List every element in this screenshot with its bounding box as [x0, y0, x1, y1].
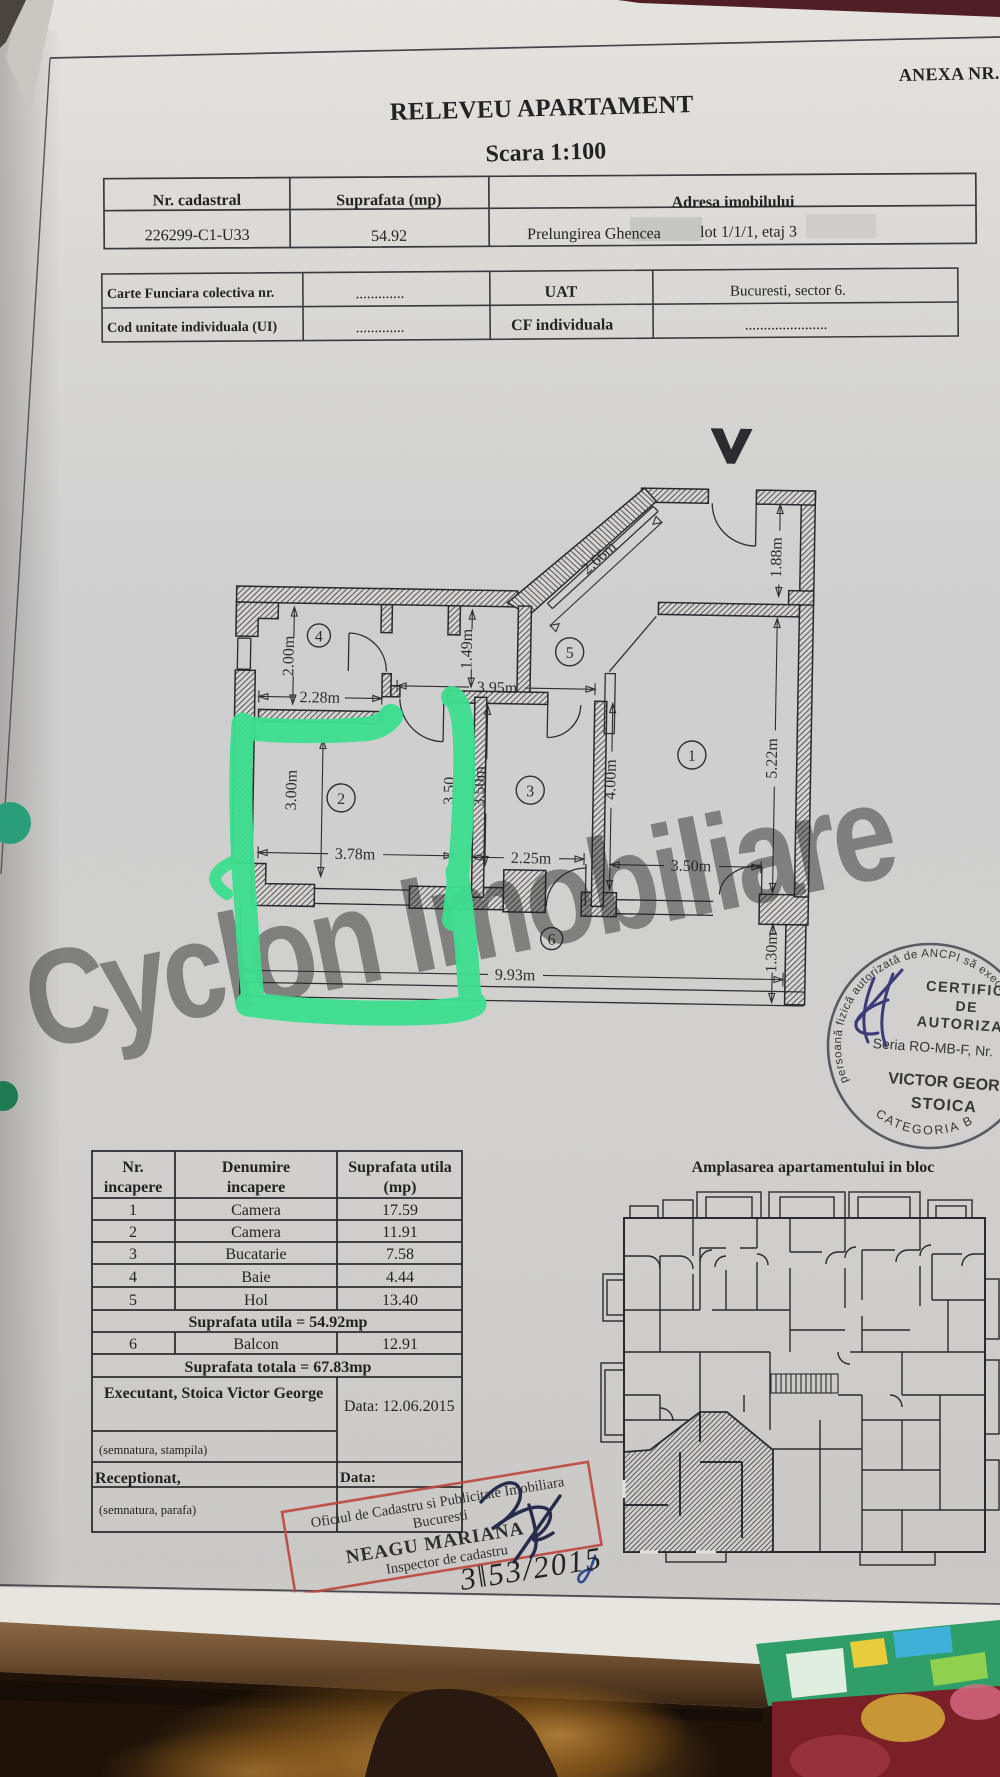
svg-text:4.00m: 4.00m [602, 759, 620, 800]
svg-text:Scara 1:100: Scara 1:100 [485, 138, 606, 167]
svg-text:Balcon: Balcon [233, 1336, 278, 1353]
svg-text:CF individuala: CF individuala [511, 316, 613, 334]
svg-text:4: 4 [315, 628, 323, 645]
svg-text:6: 6 [129, 1336, 137, 1353]
svg-text:Hol: Hol [244, 1292, 269, 1309]
svg-text:3.00m: 3.00m [283, 769, 301, 810]
svg-text:Receptionat,: Receptionat, [95, 1470, 181, 1487]
svg-text:1: 1 [688, 748, 696, 765]
svg-text:5: 5 [565, 645, 573, 662]
svg-text:7.58: 7.58 [386, 1246, 414, 1263]
svg-text:incapere: incapere [227, 1179, 285, 1196]
svg-text:ANEXA NR. 1: ANEXA NR. 1 [899, 62, 1000, 85]
svg-text:(semnatura, stampila): (semnatura, stampila) [99, 1443, 207, 1457]
svg-text:Baie: Baie [241, 1269, 270, 1286]
svg-text:1.30m: 1.30m [763, 932, 781, 973]
svg-text:Suprafata utila: Suprafata utila [348, 1159, 452, 1176]
svg-text:Cod unitate individuala (UI): Cod unitate individuala (UI) [107, 320, 277, 336]
svg-text:Suprafata totala = 67.83mp: Suprafata totala = 67.83mp [185, 1359, 372, 1376]
svg-text:Denumire: Denumire [222, 1159, 290, 1176]
svg-text:lot 1/1/1, etaj 3: lot 1/1/1, etaj 3 [700, 223, 797, 241]
svg-text:UAT: UAT [545, 284, 578, 301]
svg-text:2.28m: 2.28m [299, 689, 340, 707]
svg-text:3: 3 [526, 783, 534, 800]
svg-text:Suprafata (mp): Suprafata (mp) [336, 192, 441, 210]
svg-text:1.88m: 1.88m [768, 537, 786, 578]
svg-text:17.59: 17.59 [382, 1202, 418, 1219]
svg-text:Amplasarea apartamentului in b: Amplasarea apartamentului in bloc [692, 1159, 935, 1176]
svg-text:1: 1 [129, 1202, 137, 1219]
svg-text:4.44: 4.44 [386, 1269, 414, 1286]
svg-text:.............: ............. [355, 286, 404, 302]
svg-text:11.91: 11.91 [382, 1224, 417, 1241]
svg-text:5: 5 [129, 1292, 137, 1309]
svg-text:Bucuresti, sector 6.: Bucuresti, sector 6. [730, 283, 846, 300]
svg-text:54.92: 54.92 [371, 228, 407, 245]
svg-text:Carte Funciara colectiva nr.: Carte Funciara colectiva nr. [107, 286, 275, 302]
svg-text:Nr. cadastral: Nr. cadastral [153, 192, 242, 210]
svg-text:(semnatura, parafa): (semnatura, parafa) [99, 1503, 196, 1517]
svg-text:4: 4 [129, 1269, 137, 1286]
svg-text:Adresa imobilului: Adresa imobilului [671, 193, 794, 211]
svg-text:incapere: incapere [104, 1179, 162, 1196]
svg-text:3: 3 [129, 1246, 137, 1263]
svg-text:Camera: Camera [231, 1202, 281, 1219]
svg-text:.............: ............. [356, 320, 405, 336]
svg-text:Camera: Camera [231, 1224, 281, 1241]
svg-text:Suprafata utila = 54.92mp: Suprafata utila = 54.92mp [189, 1314, 368, 1331]
svg-text:2: 2 [337, 791, 345, 808]
svg-text:2.00m: 2.00m [280, 635, 298, 676]
svg-text:226299-C1-U33: 226299-C1-U33 [145, 227, 250, 245]
svg-text:Executant, Stoica Victor Georg: Executant, Stoica Victor George [104, 1385, 323, 1402]
svg-text:Data: 12.06.2015: Data: 12.06.2015 [344, 1398, 455, 1415]
svg-text:13.40: 13.40 [382, 1292, 418, 1309]
svg-text:3.95m: 3.95m [477, 679, 518, 697]
svg-text:(mp): (mp) [384, 1179, 417, 1196]
svg-text:Nr.: Nr. [122, 1159, 143, 1176]
svg-text:DE: DE [955, 998, 979, 1016]
svg-text:......................: ...................... [745, 317, 828, 334]
svg-text:1.49m: 1.49m [458, 628, 476, 669]
svg-text:2: 2 [129, 1224, 137, 1241]
svg-text:Prelungirea Ghencea: Prelungirea Ghencea [527, 225, 661, 243]
svg-text:Data:: Data: [340, 1470, 376, 1486]
svg-text:Bucatarie: Bucatarie [225, 1246, 286, 1263]
svg-text:12.91: 12.91 [382, 1336, 418, 1353]
